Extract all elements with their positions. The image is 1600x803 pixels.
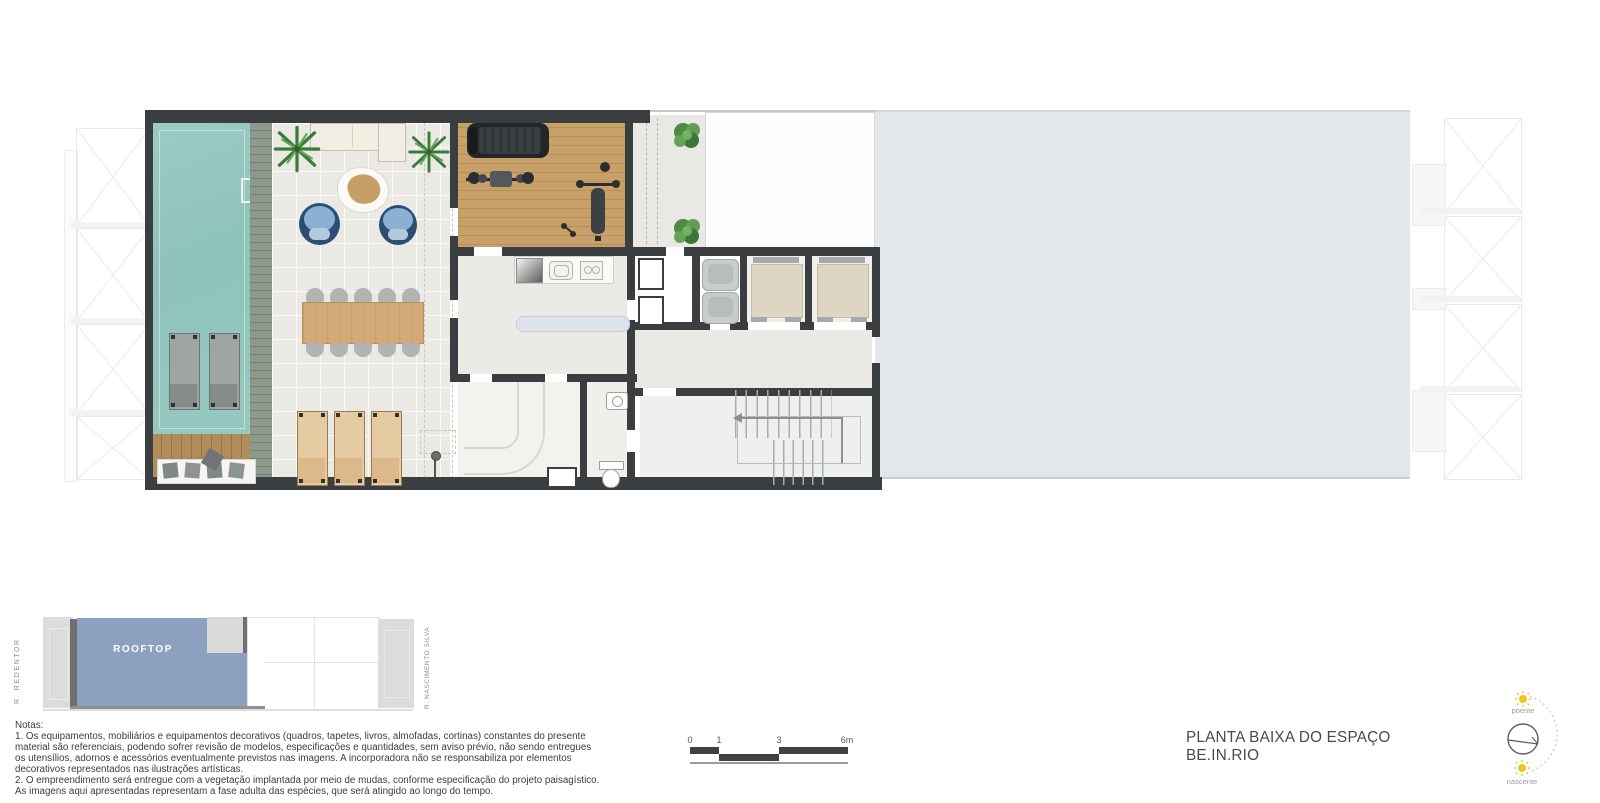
- wall-dml-left: [692, 247, 700, 330]
- lounger-post: [299, 413, 303, 417]
- scale-tick: 0: [685, 735, 695, 745]
- wall-gym-bottom: [502, 247, 632, 256]
- dining-chair: [306, 288, 324, 302]
- compass-east-label: nascente: [1493, 777, 1551, 786]
- treadmill-belt: [479, 127, 541, 154]
- lounger-back: [170, 384, 197, 407]
- bench-pad: [490, 171, 512, 187]
- pergola-dashed-line: [424, 123, 425, 478]
- street-label-left: R. REDENTOR: [14, 623, 21, 719]
- shower-stem: [434, 459, 436, 477]
- toilet-bowl: [602, 469, 620, 488]
- sink-icon: [606, 392, 628, 410]
- elevator-cab: [751, 264, 803, 318]
- bush-icon: [668, 118, 706, 154]
- scale-tick: 1: [714, 735, 724, 745]
- counterweight: [753, 257, 799, 263]
- ramp-guides: [458, 382, 580, 477]
- wall-kitchen-bottom: [492, 374, 545, 382]
- sink-basin: [554, 265, 569, 277]
- press-plate: [576, 180, 584, 188]
- sun-lounger: [371, 411, 402, 486]
- wall-elevator-divider: [805, 247, 812, 330]
- scale-tick: 3: [774, 735, 784, 745]
- dining-chair: [330, 288, 348, 302]
- wall-core-left: [627, 452, 635, 477]
- keyplan-dark-edge: [70, 619, 77, 707]
- keyplan-grid-line: [264, 662, 379, 663]
- stone-deck-strip: [250, 123, 272, 478]
- elevator-cab: [817, 264, 869, 318]
- keyplan-area-label: ROOFTOP: [103, 644, 183, 655]
- bin-lid: [708, 297, 733, 317]
- sun-icon: [1514, 760, 1530, 776]
- pillow: [184, 462, 200, 478]
- coffee-table-top: [345, 171, 383, 208]
- palm-tree-icon: [404, 128, 454, 176]
- wall-core-left: [627, 247, 635, 300]
- note-item: 2. O empreendimento será entregue com a …: [15, 776, 603, 798]
- pool-lounger: [169, 333, 200, 410]
- kettlebell-icon: [600, 162, 610, 172]
- press-foot: [595, 236, 601, 241]
- lounger-post: [171, 335, 175, 339]
- barbell-plate: [522, 172, 534, 184]
- bench-press-station: [576, 178, 620, 242]
- press-plate: [612, 180, 620, 188]
- treadmill: [467, 123, 549, 158]
- burner: [584, 266, 592, 274]
- sink-basin: [612, 396, 623, 407]
- keyplan-block-detail: [384, 630, 410, 698]
- wall-gym-right: [625, 110, 633, 256]
- round-armchair: [379, 205, 417, 245]
- stair-direction-line: [841, 417, 843, 463]
- fridge: [516, 258, 543, 283]
- sink-icon: [549, 261, 573, 280]
- sheet-title: PLANTA BAIXA DO ESPAÇO BE.IN.RIO: [1186, 729, 1454, 765]
- wall-stair-top: [632, 388, 643, 396]
- round-armchair: [299, 203, 340, 245]
- keyplan-block-detail: [49, 628, 69, 700]
- shower-icon: [431, 451, 441, 461]
- wall-kitchen-left: [450, 256, 458, 300]
- wall-service-top: [684, 247, 880, 256]
- lounger-post: [336, 413, 340, 417]
- wall-lobby-front: [800, 322, 814, 330]
- scale-tick: 6m: [838, 735, 856, 745]
- lounger-post: [211, 335, 215, 339]
- armchair-cushion: [388, 229, 408, 240]
- keyplan-block-right: [378, 619, 414, 708]
- counter-bench: [516, 316, 630, 332]
- wall-top: [145, 110, 650, 123]
- sun-lounger: [297, 411, 328, 486]
- lounger-back: [335, 458, 362, 483]
- wall-kitchen-bottom: [450, 374, 470, 382]
- keyplan-white-area: [247, 617, 380, 711]
- scale-bar: 0 1 3 6m: [670, 730, 870, 770]
- key-plan: R. REDENTOR ROOFTOP R. NASCIMENTO SILVA: [0, 585, 460, 720]
- barbell-plate: [478, 174, 487, 183]
- elevator-door: [751, 317, 767, 322]
- elevator-door: [785, 317, 801, 322]
- floor-plan-sheet: R. REDENTOR ROOFTOP R. NASCIMENTO SILVA …: [0, 0, 1600, 803]
- shaft-box: [638, 296, 664, 326]
- cooktop-icon: [580, 261, 603, 280]
- sun-lounger: [334, 411, 365, 486]
- scale-segment: [779, 747, 848, 754]
- elevator: [812, 256, 872, 322]
- lounger-back: [210, 384, 237, 407]
- elevator-lobby-floor: [635, 330, 872, 388]
- dining-chair: [402, 288, 420, 302]
- stair-arrow-head: [733, 413, 742, 423]
- bush-icon: [668, 214, 706, 250]
- barbell-bench: [464, 168, 534, 196]
- pool-lounger: [209, 333, 240, 410]
- street-label-right: R. NASCIMENTO SILVA: [424, 615, 431, 720]
- compass-west-label: poente: [1497, 706, 1549, 715]
- service-bin: [702, 259, 739, 291]
- treadmill-console: [469, 127, 477, 154]
- stair-direction-line: [741, 417, 843, 419]
- wall-left: [145, 110, 153, 478]
- keyplan-grid-line: [314, 618, 315, 710]
- compass: poente nascente: [1460, 680, 1600, 800]
- pillow: [228, 462, 245, 479]
- dining-chair: [378, 288, 396, 302]
- dining-table: [302, 302, 424, 344]
- wall-lobby-front: [866, 322, 880, 330]
- scale-segment: [719, 754, 779, 761]
- elevator: [747, 256, 805, 322]
- wall-wc-divider: [580, 382, 587, 477]
- void-open-below: [705, 112, 875, 252]
- service-bin: [702, 292, 739, 324]
- burner: [592, 266, 600, 274]
- notes-block: Notas: 1. Os equipamentos, mobiliários e…: [15, 721, 603, 798]
- lounger-post: [373, 413, 377, 417]
- dashed-planter: [420, 430, 456, 454]
- walkway-dashed-line: [657, 118, 658, 244]
- counterweight: [819, 257, 865, 263]
- bin-lid: [708, 264, 733, 284]
- keyplan-shadow-light: [43, 709, 413, 711]
- palm-tree-icon: [268, 122, 326, 176]
- note-item: 1. Os equipamentos, mobiliários e equipa…: [15, 732, 603, 776]
- dumbbell-end: [570, 231, 576, 237]
- press-bench: [591, 188, 605, 234]
- armchair-cushion: [309, 228, 330, 240]
- toilet-icon: [599, 461, 623, 487]
- shaft-box: [638, 258, 664, 290]
- coffee-table: [337, 167, 389, 213]
- scale-segment: [690, 747, 719, 754]
- lounger-back: [372, 458, 399, 483]
- wall-elevator-divider: [740, 247, 747, 330]
- wall-kitchen-bottom: [567, 374, 637, 382]
- dumbbell-end: [561, 223, 567, 229]
- walkway-dashed-line: [646, 118, 647, 244]
- wall-gym-bottom: [450, 247, 474, 256]
- lounger-back: [298, 458, 325, 483]
- pillow: [162, 462, 178, 478]
- dining-chair: [354, 288, 372, 302]
- void-top-line: [650, 110, 875, 112]
- wall-service-top: [632, 247, 666, 256]
- elevator-door: [851, 317, 867, 322]
- sofa-cushion-line: [352, 125, 353, 147]
- sofa-chaise: [378, 123, 406, 162]
- sun-icon: [1515, 691, 1531, 707]
- wall-right-lower: [872, 363, 880, 477]
- wall-kitchen-left: [450, 318, 458, 378]
- elevator-door: [817, 317, 833, 322]
- keyplan-block-left: [43, 617, 73, 708]
- dumbbell-icon: [561, 222, 577, 238]
- keyplan-elevator-box: [207, 617, 247, 653]
- scale-baseline: [690, 762, 848, 764]
